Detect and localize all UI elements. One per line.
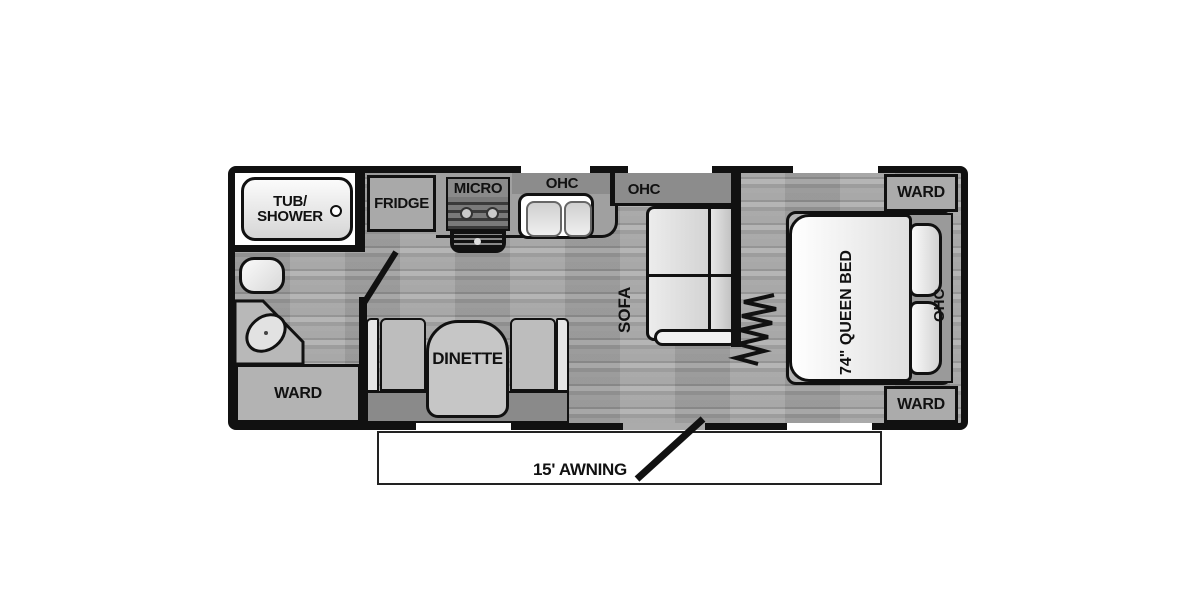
range-burner-area (448, 197, 508, 229)
sofa-armrest (654, 329, 738, 346)
fridge: FRIDGE (367, 175, 436, 232)
fridge-label: FRIDGE (374, 196, 429, 211)
toilet (239, 257, 285, 294)
wardrobe-bottom-right: WARD (884, 386, 958, 423)
window (628, 166, 712, 173)
queen-bed-label: 74" QUEEN BED (838, 227, 856, 375)
dinette-bench-left (380, 318, 426, 391)
bathroom-wall-bottom (228, 245, 365, 252)
sofa-ohc-label: OHC (621, 181, 667, 197)
bathroom-wall-right (355, 166, 365, 252)
sofa-cushion-seam (649, 274, 733, 277)
microwave-range: MICRO (446, 177, 510, 231)
range-knob-icon (474, 238, 481, 245)
sink-basin (526, 201, 562, 237)
floorplan-canvas: 15' AWNING TUB/ SHOWER WARD FRIDGE OHC M… (0, 0, 1200, 600)
wardrobe-bathroom-label: WARD (274, 386, 322, 402)
sofa-ohc: OHC (615, 173, 735, 206)
wardrobe-bottom-right-label: WARD (897, 397, 945, 413)
wardrobe-top-right-label: WARD (897, 185, 945, 201)
tub-shower: TUB/ SHOWER (241, 177, 353, 241)
burner-icon (460, 207, 473, 220)
dinette-table: DINETTE (426, 320, 509, 418)
entry-door-opening (623, 423, 705, 430)
window (787, 423, 872, 430)
queen-bed-mattress: 74" QUEEN BED (789, 214, 912, 382)
tub-shower-label-line1: TUB/ (273, 194, 307, 209)
window (416, 423, 511, 430)
wardrobe-top-right: WARD (884, 174, 958, 212)
kitchen-sink (518, 193, 594, 239)
dinette-arm-right (556, 318, 569, 392)
kitchen-ohc-label: OHC (546, 176, 578, 191)
kitchen-ohc: OHC (512, 173, 612, 194)
bedroom-ohc-label: OHC (931, 278, 948, 322)
range-lower (450, 231, 506, 253)
dinette-label: DINETTE (432, 350, 503, 367)
dinette-arm-left (366, 318, 379, 392)
burner-icon (486, 207, 499, 220)
sofa-label: SOFA (615, 233, 635, 333)
micro-label: MICRO (448, 180, 508, 196)
awning-label: 15' AWNING (505, 459, 655, 479)
dinette-bench-right (510, 318, 556, 391)
bedroom-partition-wall (731, 166, 741, 347)
tub-faucet-icon (330, 205, 342, 217)
sink-basin (564, 201, 592, 237)
tub-shower-label-line2: SHOWER (257, 209, 323, 224)
wardrobe-bathroom: WARD (235, 364, 361, 423)
window (521, 166, 590, 173)
window (793, 166, 878, 173)
sofa (646, 206, 736, 341)
